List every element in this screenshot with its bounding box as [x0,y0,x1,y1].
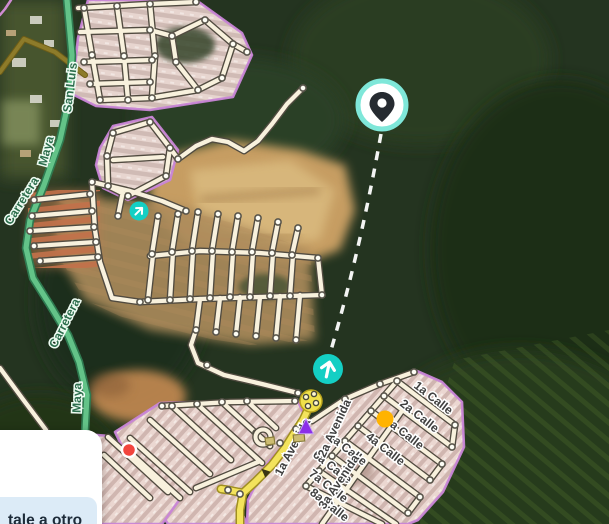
junction-node[interactable] [147,119,153,125]
junction-node[interactable] [169,33,175,39]
street-road-segment[interactable] [90,82,150,84]
junction-node[interactable] [213,329,219,335]
junction-node[interactable] [149,251,155,257]
junction-node[interactable] [169,403,175,409]
junction-node[interactable] [167,297,173,303]
junction-node[interactable] [81,5,87,11]
cluster-node[interactable] [313,400,318,405]
junction-node[interactable] [244,49,250,55]
building-footprint[interactable] [293,434,305,442]
junction-node[interactable] [147,79,153,85]
junction-node[interactable] [394,378,400,384]
street-road-segment[interactable] [250,252,253,297]
junction-node[interactable] [175,156,181,162]
junction-node[interactable] [207,295,213,301]
junction-node[interactable] [439,461,445,467]
junction-node[interactable] [427,477,433,483]
junction-node[interactable] [31,243,37,249]
junction-node[interactable] [253,333,259,339]
junction-node[interactable] [147,1,153,7]
cluster-node[interactable] [303,394,308,399]
street-road-segment[interactable] [210,251,213,298]
junction-node[interactable] [125,193,131,199]
junction-node[interactable] [183,208,189,214]
map-viewport[interactable]: 1a Calle2a Calle3a Calle4a Calle5a Calle… [0,0,609,524]
junction-node[interactable] [230,41,236,47]
junction-node[interactable] [173,59,179,65]
map-dot-marker[interactable] [122,443,136,457]
junction-node[interactable] [215,211,221,217]
road-label: Maya [69,382,84,413]
junction-node[interactable] [405,510,411,516]
junction-node[interactable] [225,487,231,493]
junction-node[interactable] [147,27,153,33]
junction-node[interactable] [89,208,95,214]
junction-node[interactable] [244,398,250,404]
junction-node[interactable] [287,293,293,299]
junction-node[interactable] [229,249,235,255]
junction-node[interactable] [277,440,283,446]
pin-icon-hole [377,98,386,107]
junction-node[interactable] [289,252,295,258]
junction-node[interactable] [155,213,161,219]
street-road-segment[interactable] [270,253,273,296]
junction-node[interactable] [449,444,455,450]
junction-node[interactable] [89,52,95,58]
junction-node[interactable] [368,408,374,414]
junction-node[interactable] [97,97,103,103]
junction-node[interactable] [202,17,208,23]
map-dot-marker[interactable] [377,411,394,428]
junction-node[interactable] [237,491,243,497]
junction-node[interactable] [292,398,298,404]
junction-node[interactable] [37,258,43,264]
junction-node[interactable] [195,209,201,215]
junction-node[interactable] [255,215,261,221]
junction-node[interactable] [193,0,199,5]
junction-node[interactable] [87,81,93,87]
cluster-node[interactable] [311,391,316,396]
junction-node[interactable] [163,173,169,179]
junction-node[interactable] [89,179,95,185]
building-footprint[interactable] [265,437,275,445]
popup-action-label: tale a otro [8,512,82,524]
junction-node[interactable] [175,211,181,217]
junction-node[interactable] [194,401,200,407]
junction-node[interactable] [355,423,361,429]
junction-node[interactable] [115,213,121,219]
street-road-segment[interactable] [230,252,233,297]
junction-node[interactable] [319,292,325,298]
junction-node[interactable] [104,153,110,159]
junction-node[interactable] [145,297,151,303]
street-road-segment[interactable] [113,157,163,160]
junction-node[interactable] [193,327,199,333]
popup-action-button[interactable]: tale a otro [0,497,97,524]
junction-node[interactable] [149,57,155,63]
junction-node[interactable] [249,249,255,255]
junction-node[interactable] [167,145,173,151]
junction-node[interactable] [81,59,87,65]
junction-node[interactable] [187,296,193,302]
cluster-node[interactable] [305,403,310,408]
junction-node[interactable] [31,197,37,203]
street-road-segment[interactable] [290,255,293,296]
junction-node[interactable] [204,362,210,368]
junction-node[interactable] [137,299,143,305]
junction-node[interactable] [121,53,127,59]
junction-node[interactable] [267,293,273,299]
junction-node[interactable] [417,494,423,500]
junction-node[interactable] [295,390,301,396]
junction-node[interactable] [381,393,387,399]
street-road-segment[interactable] [190,251,193,299]
junction-node[interactable] [303,483,309,489]
junction-node[interactable] [149,95,155,101]
junction-node[interactable] [411,369,417,375]
junction-node[interactable] [91,224,97,230]
junction-node[interactable] [452,422,458,428]
junction-node[interactable] [87,191,93,197]
junction-node[interactable] [209,248,215,254]
location-pin-marker[interactable] [358,81,406,129]
junction-node[interactable] [29,213,35,219]
junction-node[interactable] [247,294,253,300]
junction-node[interactable] [227,294,233,300]
junction-node[interactable] [219,75,225,81]
junction-node[interactable] [110,130,116,136]
junction-node[interactable] [275,219,281,225]
junction-node[interactable] [195,87,201,93]
junction-node[interactable] [273,335,279,341]
junction-node[interactable] [125,97,131,103]
junction-node[interactable] [169,249,175,255]
junction-node[interactable] [269,250,275,256]
junction-node[interactable] [315,255,321,261]
teal-arrow-marker[interactable] [130,202,149,221]
junction-node[interactable] [235,213,241,219]
street-road-segment[interactable] [84,60,152,62]
junction-node[interactable] [295,225,301,231]
junction-node[interactable] [219,399,225,405]
junction-node[interactable] [189,248,195,254]
junction-node[interactable] [95,254,101,260]
junction-node[interactable] [105,183,111,189]
popup-card: tale a otro [0,430,102,524]
junction-node[interactable] [27,228,33,234]
junction-node[interactable] [93,239,99,245]
street-road-segment[interactable] [170,252,173,300]
junction-node[interactable] [114,3,120,9]
junction-node[interactable] [233,331,239,337]
junction-node[interactable] [377,381,383,387]
junction-node[interactable] [293,337,299,343]
junction-node[interactable] [300,85,306,91]
teal-arrow-marker[interactable] [313,354,343,384]
junction-node[interactable] [159,403,165,409]
